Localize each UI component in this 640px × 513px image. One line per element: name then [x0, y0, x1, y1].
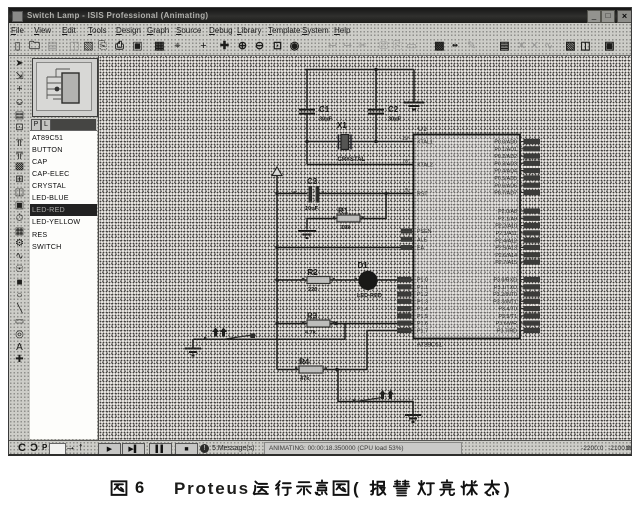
svg-text:P1.5: P1.5 [417, 314, 428, 320]
svg-text:R2: R2 [308, 268, 319, 277]
svg-text:P3.2/INT0: P3.2/INT0 [493, 292, 517, 298]
svg-text:P0.1/AD1: P0.1/AD1 [494, 147, 517, 153]
svg-text:P0.2/AD2: P0.2/AD2 [494, 154, 517, 160]
svg-text:220: 220 [308, 287, 317, 293]
svg-text:P2.4/A12: P2.4/A12 [495, 238, 517, 244]
svg-text:18: 18 [402, 159, 408, 165]
svg-text:30pF: 30pF [388, 117, 402, 123]
svg-text:47k: 47k [300, 376, 310, 382]
svg-text:AT89C51: AT89C51 [417, 343, 443, 349]
svg-text:C1: C1 [319, 105, 330, 114]
svg-text:P2.2/A10: P2.2/A10 [495, 224, 517, 230]
svg-text:10k: 10k [341, 225, 351, 231]
svg-text:P2.0/A8: P2.0/A8 [498, 209, 517, 215]
svg-text:P3.4/T0: P3.4/T0 [498, 307, 517, 313]
svg-text:C2: C2 [388, 105, 399, 114]
svg-text:P3.3/INT1: P3.3/INT1 [493, 299, 517, 305]
svg-text:P2.3/A11: P2.3/A11 [496, 231, 517, 237]
svg-text:RST: RST [417, 192, 428, 198]
svg-text:R4: R4 [299, 358, 310, 367]
svg-text:30pF: 30pF [319, 117, 333, 123]
svg-text:P1.0: P1.0 [417, 278, 428, 284]
svg-text:P2.1/A9: P2.1/A9 [498, 216, 517, 222]
svg-text:P0.5/AD5: P0.5/AD5 [494, 176, 517, 182]
svg-text:XTAL1: XTAL1 [417, 140, 433, 146]
svg-text:PSEN: PSEN [417, 229, 432, 235]
svg-text:P2.7/A15: P2.7/A15 [495, 260, 517, 266]
svg-text:P3.0/RXD: P3.0/RXD [493, 278, 517, 284]
svg-text:19: 19 [402, 136, 408, 142]
svg-text:ALE: ALE [417, 237, 427, 243]
svg-text:P0.4/AD4: P0.4/AD4 [494, 169, 517, 175]
svg-text:XTAL2: XTAL2 [417, 163, 433, 169]
svg-text:P1.1: P1.1 [417, 285, 428, 291]
svg-text:P2.5/A13: P2.5/A13 [495, 246, 517, 252]
svg-text:P1.2: P1.2 [417, 292, 428, 298]
svg-text:P0.6/AD6: P0.6/AD6 [494, 183, 517, 189]
svg-text:R3: R3 [307, 312, 318, 321]
svg-text:P3.7/RD: P3.7/RD [497, 329, 517, 335]
svg-text:P2.6/A14: P2.6/A14 [495, 253, 517, 259]
svg-text:P1.4: P1.4 [417, 307, 428, 313]
svg-text:P0.7/AD7: P0.7/AD7 [494, 191, 517, 197]
svg-text:P3.6/WR: P3.6/WR [496, 321, 517, 327]
svg-text:X1: X1 [337, 121, 347, 130]
svg-text:P3.1/TXD: P3.1/TXD [494, 285, 517, 291]
svg-text:4.7k: 4.7k [305, 330, 317, 336]
svg-text:10uF: 10uF [305, 206, 319, 212]
svg-text:P0.3/AD3: P0.3/AD3 [494, 161, 517, 167]
svg-text:EA: EA [417, 246, 425, 252]
svg-text:P1.7: P1.7 [417, 329, 428, 335]
svg-text:LED-RED: LED-RED [357, 293, 382, 299]
svg-text:R1: R1 [338, 207, 349, 216]
svg-text:U1: U1 [418, 126, 427, 133]
svg-text:P0.0/AD0: P0.0/AD0 [494, 140, 517, 146]
svg-text:CRYSTAL: CRYSTAL [338, 157, 366, 163]
svg-text:P1.6: P1.6 [417, 321, 428, 327]
svg-text:D1: D1 [358, 261, 369, 270]
svg-text:P3.5/T1: P3.5/T1 [498, 314, 517, 320]
svg-text:9: 9 [405, 188, 408, 194]
svg-text:P1.3: P1.3 [417, 299, 428, 305]
svg-text:C3: C3 [307, 177, 318, 186]
